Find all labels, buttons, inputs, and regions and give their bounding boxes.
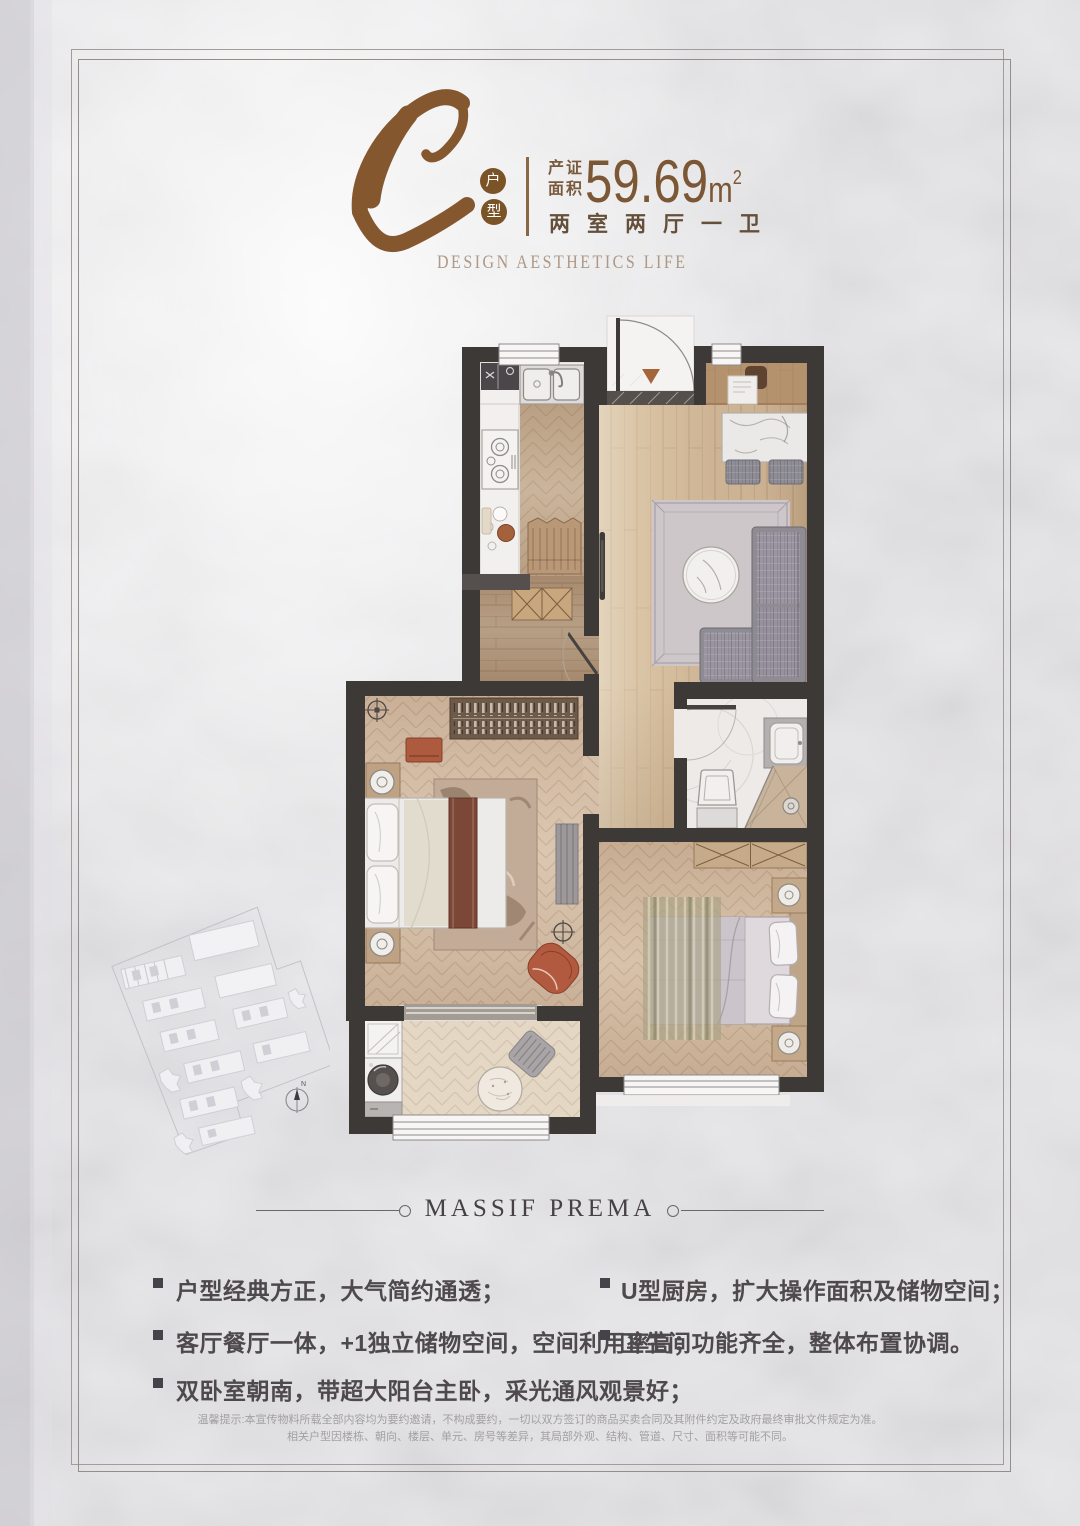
svg-text:N: N (301, 1081, 306, 1088)
